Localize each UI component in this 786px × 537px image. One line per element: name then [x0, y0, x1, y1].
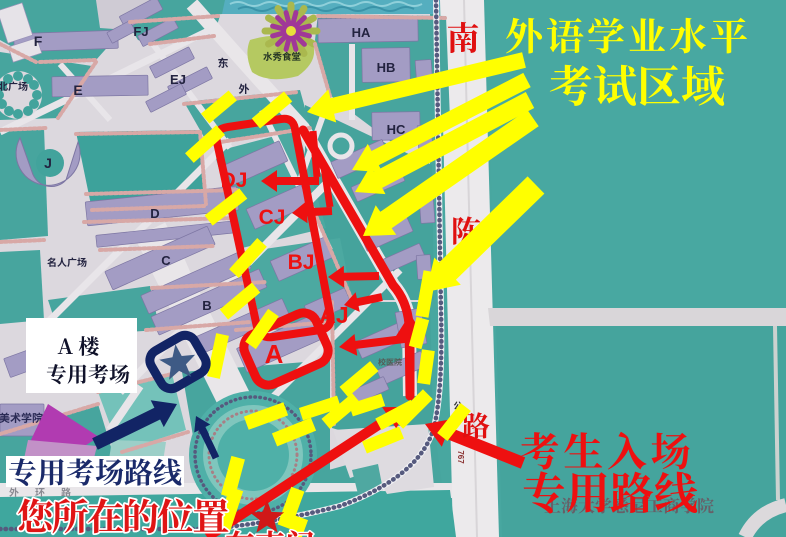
svg-text:E: E — [73, 82, 82, 98]
svg-text:767: 767 — [456, 450, 465, 464]
svg-text:DJ: DJ — [221, 169, 248, 192]
svg-text:J: J — [44, 155, 52, 171]
svg-text:BJ: BJ — [288, 251, 315, 274]
svg-text:A: A — [265, 339, 284, 369]
svg-text:F: F — [34, 33, 43, 49]
svg-text:D: D — [150, 206, 159, 221]
svg-text:B: B — [202, 298, 211, 313]
svg-text:HB: HB — [377, 60, 396, 75]
svg-text:CJ: CJ — [259, 206, 286, 229]
svg-text:HA: HA — [352, 25, 371, 40]
svg-text:EJ: EJ — [170, 72, 186, 87]
svg-text:C: C — [161, 253, 171, 268]
svg-text:AJ: AJ — [319, 302, 348, 328]
svg-text:FJ: FJ — [133, 24, 148, 39]
